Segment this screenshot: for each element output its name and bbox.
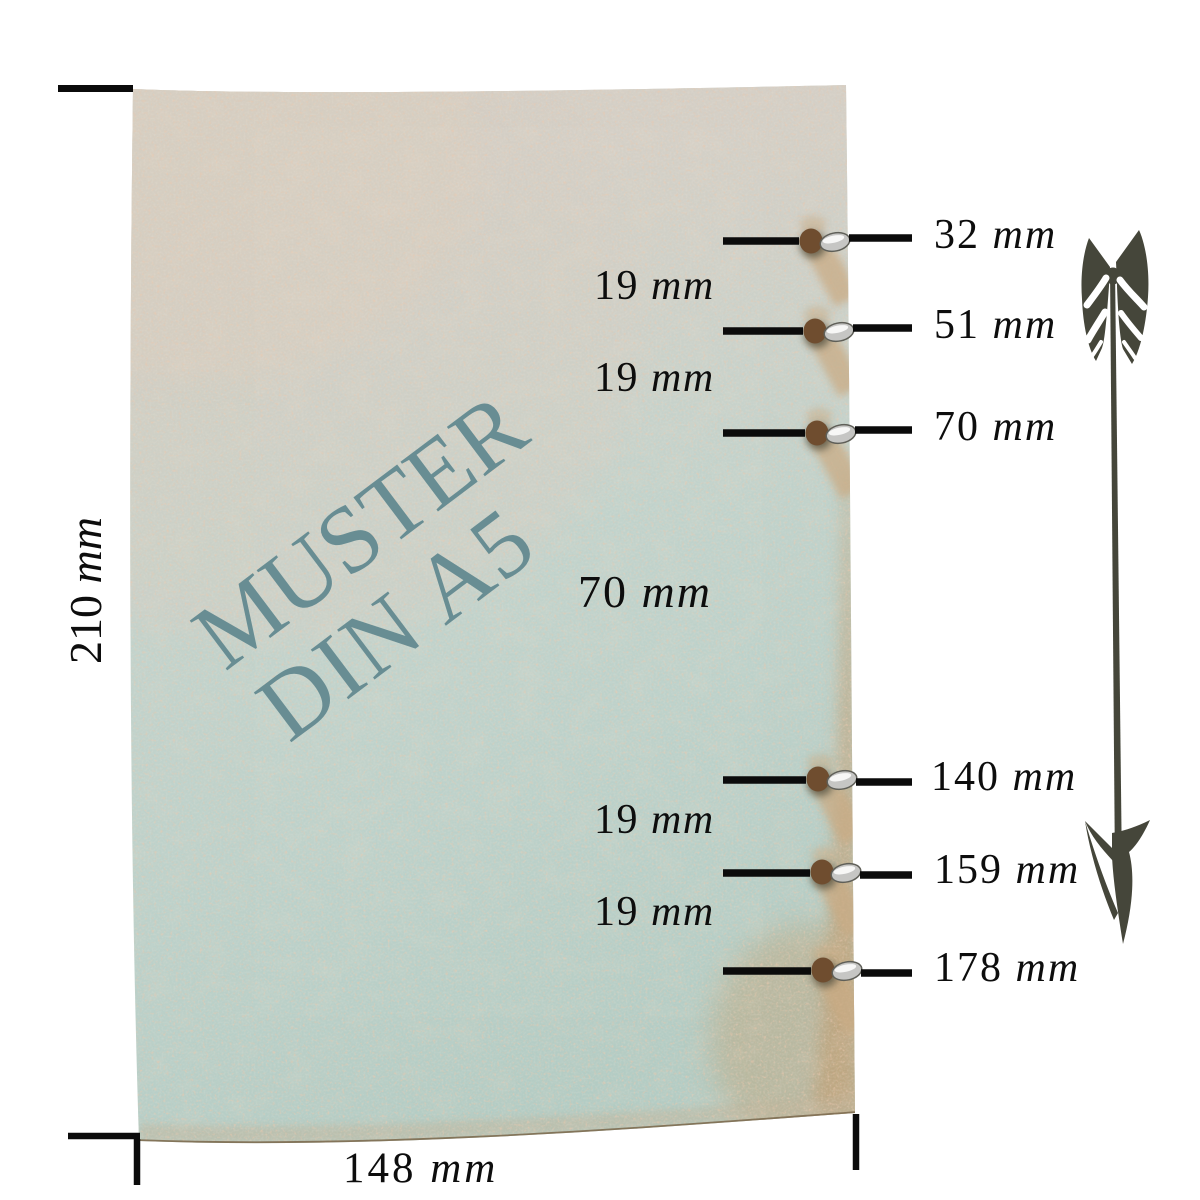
svg-text:159 mm: 159 mm [934,847,1080,893]
svg-text:19 mm: 19 mm [594,355,715,401]
svg-text:70 mm: 70 mm [934,404,1057,450]
svg-text:32 mm: 32 mm [934,212,1057,258]
svg-text:19 mm: 19 mm [594,263,715,309]
svg-text:210 mm: 210 mm [60,517,111,664]
svg-text:148 mm: 148 mm [343,1145,498,1192]
svg-text:178 mm: 178 mm [934,945,1080,991]
svg-text:70 mm: 70 mm [578,566,712,617]
svg-text:19 mm: 19 mm [594,797,715,843]
svg-text:140 mm: 140 mm [931,754,1077,800]
svg-text:51 mm: 51 mm [934,302,1057,348]
svg-text:19 mm: 19 mm [594,889,715,935]
